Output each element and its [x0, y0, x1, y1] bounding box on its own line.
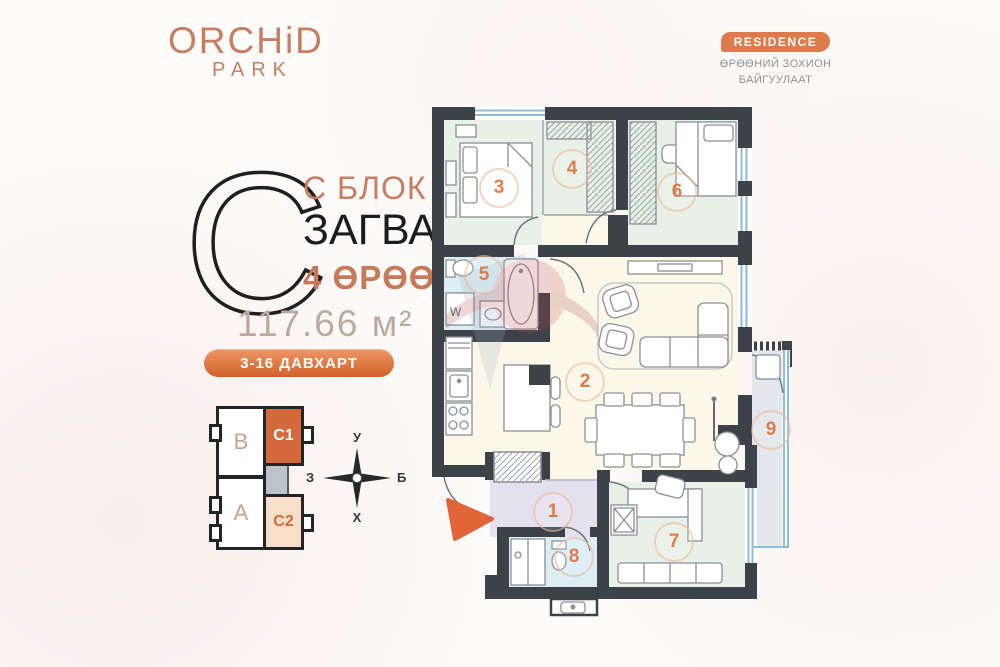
- mini-map-unit-b-label: B: [234, 429, 249, 455]
- compass-east-label: Б: [397, 470, 406, 485]
- compass-south-label: Х: [353, 510, 362, 525]
- flyer-canvas: ORCHiD PARK RESIDENCE ӨРӨӨНИЙ ЗОХИОН БАЙ…: [0, 0, 1000, 667]
- room-number-2: 2: [565, 362, 605, 402]
- compass-west-label: З: [306, 470, 314, 485]
- entry-wardrobe: [494, 452, 541, 482]
- room-number-6: 6: [657, 172, 697, 212]
- logo-subtitle: PARK: [212, 59, 324, 82]
- orchid-park-logo: ORCHiD PARK: [168, 20, 324, 82]
- floors-badge: 3-16 ДАВХАРТ: [204, 349, 394, 377]
- mini-map-unit-c2: C2: [263, 494, 304, 550]
- room-number-1: 1: [533, 492, 573, 532]
- room-number-4: 4: [552, 149, 592, 189]
- room-number-3: 3: [479, 168, 519, 208]
- balcony-furniture: [756, 355, 780, 379]
- compass-star-icon: [317, 446, 397, 510]
- residence-subtitle-line1: ӨРӨӨНИЙ ЗОХИОН: [698, 57, 853, 73]
- unit-area: 117.66 м²: [237, 303, 413, 345]
- compass-rose: У Х З Б: [317, 432, 397, 524]
- room-number-9: 9: [751, 410, 791, 450]
- entrance-arrow-icon: [448, 500, 492, 539]
- room-number-5: 5: [464, 255, 504, 295]
- logo-title: ORCHiD: [168, 20, 324, 62]
- mini-map-unit-c1: C1: [263, 406, 304, 466]
- washer-label: W: [450, 305, 462, 319]
- compass-north-label: У: [353, 430, 361, 445]
- floor-plan: W 1 2 3 4 5 6 7 8 9: [430, 103, 795, 620]
- residence-subtitle-line2: БАЙГУУЛААТ: [698, 73, 853, 89]
- room-number-8: 8: [554, 537, 594, 577]
- mini-map-notch: [209, 524, 222, 542]
- residence-badge: RESIDENCE: [721, 32, 831, 52]
- mini-map-unit-a: A: [216, 476, 266, 550]
- mini-map-unit-a-label: A: [234, 500, 249, 526]
- mini-map-unit-c2-label: C2: [273, 513, 293, 531]
- residence-block: RESIDENCE ӨРӨӨНИЙ ЗОХИОН БАЙГУУЛААТ: [698, 32, 853, 89]
- mini-map-notch: [209, 496, 222, 514]
- residence-subtitle: ӨРӨӨНИЙ ЗОХИОН БАЙГУУЛААТ: [698, 57, 853, 89]
- mini-map-notch: [301, 426, 314, 444]
- mini-map-notch: [301, 514, 314, 532]
- mini-map-notch: [209, 424, 222, 442]
- room-number-7: 7: [654, 522, 694, 562]
- mini-map-unit-c1-label: C1: [273, 427, 293, 445]
- block-mini-map: B C1 A C2: [208, 402, 312, 560]
- mini-map-unit-b: B: [216, 406, 266, 478]
